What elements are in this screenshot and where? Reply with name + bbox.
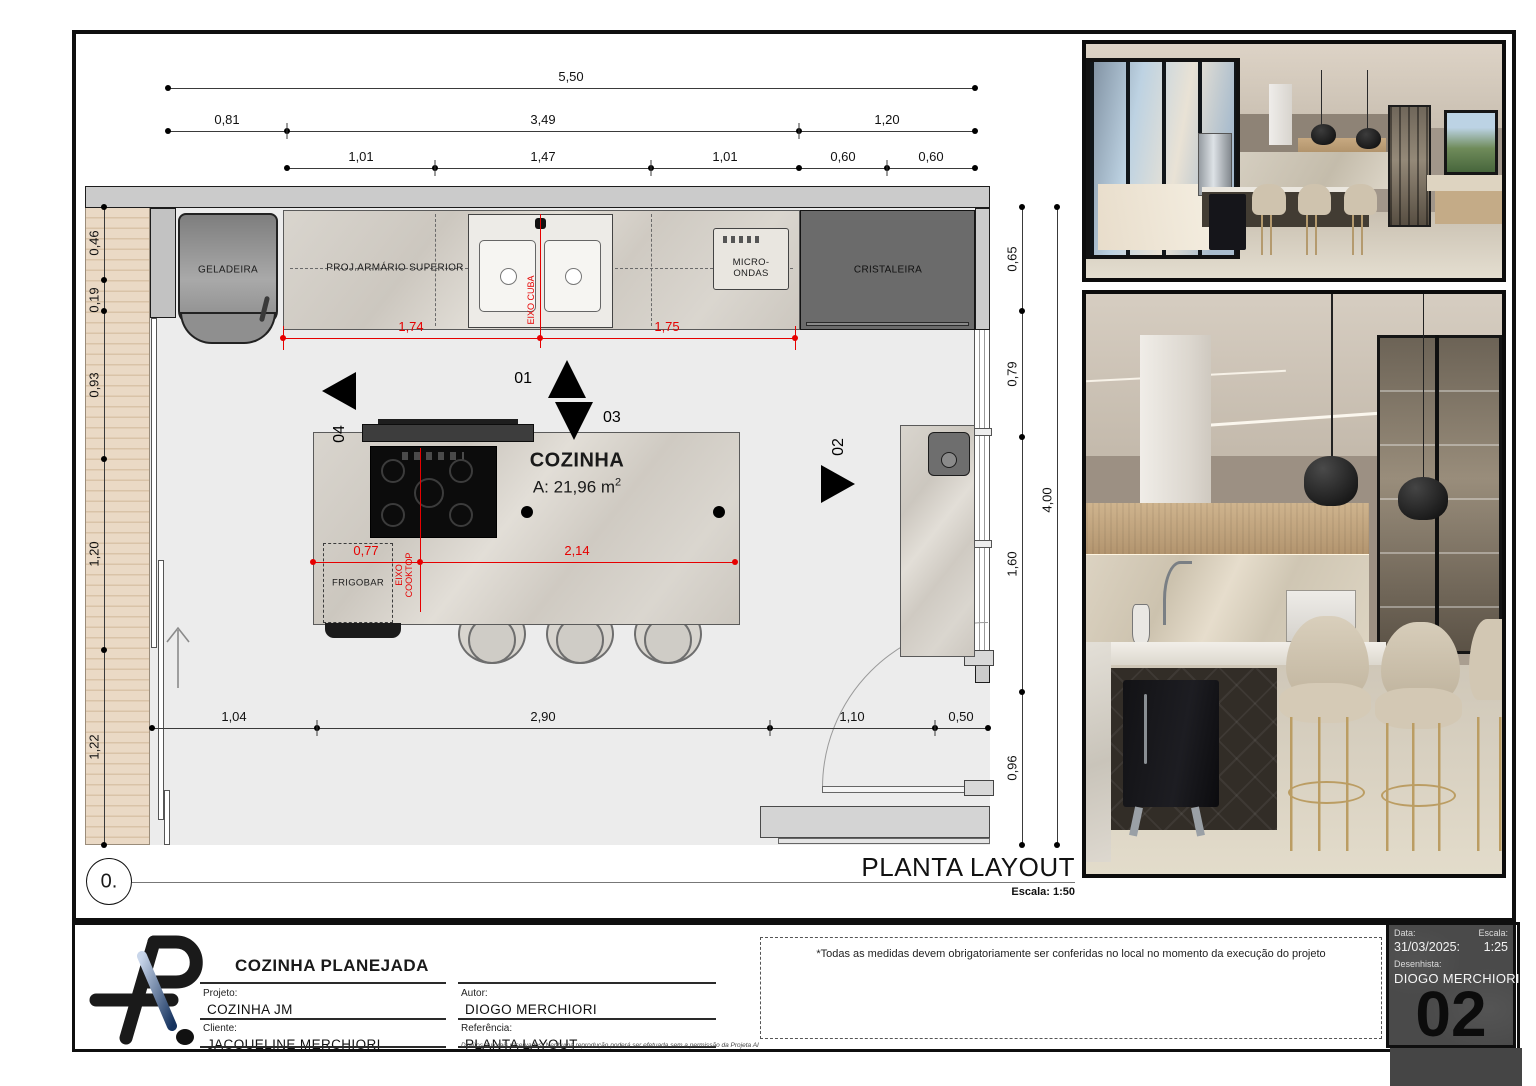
view-arrow-left-icon bbox=[322, 372, 356, 410]
dim-bottom-3: 0,50 bbox=[948, 709, 973, 724]
burner-center bbox=[414, 478, 444, 508]
left-wall-post bbox=[150, 208, 176, 318]
axis-cooktop-label: EIXO COOKTOP bbox=[394, 547, 414, 603]
view-label-02: 02 bbox=[830, 438, 848, 456]
desenhista-label: Desenhista: bbox=[1394, 959, 1442, 969]
photo1-window bbox=[1444, 110, 1498, 176]
window-transom-1 bbox=[972, 428, 992, 436]
photo2-pendant-2 bbox=[1398, 477, 1448, 521]
right-wall-upper bbox=[975, 208, 990, 330]
cristaleira-front-line bbox=[806, 322, 969, 326]
dim-top-total: 5,50 bbox=[558, 69, 583, 84]
dim-bottom-0: 1,04 bbox=[221, 709, 246, 724]
dim-top-inner-3: 0,60 bbox=[830, 149, 855, 164]
studio-logo bbox=[84, 934, 294, 1046]
dim-left-2: 0,93 bbox=[87, 372, 102, 397]
red-dim-line bbox=[313, 562, 735, 563]
bottom-counter-edge bbox=[778, 838, 990, 844]
burner-1 bbox=[381, 459, 405, 483]
axis-cooktop-line bbox=[420, 448, 421, 612]
dim-line bbox=[287, 168, 975, 169]
dim-right-3: 0,96 bbox=[1005, 755, 1020, 780]
dim-right-1: 0,79 bbox=[1005, 361, 1020, 386]
dim-left-3: 1,20 bbox=[87, 541, 102, 566]
view-label-03: 03 bbox=[603, 409, 621, 427]
info-block-footer bbox=[1390, 1048, 1522, 1086]
data-label: Data: bbox=[1394, 928, 1416, 938]
entry-arrow-icon bbox=[162, 620, 194, 690]
plan-scale: Escala: 1:50 bbox=[1011, 886, 1075, 898]
dim-right-0: 0,65 bbox=[1005, 246, 1020, 271]
room-area: A: 21,96 m2 bbox=[533, 477, 621, 498]
projeto-label: Projeto: bbox=[203, 988, 237, 999]
dim-red-island-1: 2,14 bbox=[564, 543, 589, 558]
dim-line bbox=[152, 728, 988, 729]
top-wall bbox=[85, 186, 990, 208]
photo2-hood-column bbox=[1140, 335, 1211, 515]
view-label-01: 01 bbox=[514, 370, 532, 388]
island-knob-1 bbox=[521, 506, 533, 518]
dim-left-1: 0,19 bbox=[87, 287, 102, 312]
dim-red-top-0: 1,74 bbox=[398, 319, 423, 334]
burner-4 bbox=[449, 503, 473, 527]
cliente-value: JACQUELINE MERCHIORI bbox=[207, 1037, 381, 1052]
axis-cuba-line bbox=[540, 214, 541, 348]
autor-value: DIOGO MERCHIORI bbox=[465, 1002, 597, 1017]
cliente-label: Cliente: bbox=[203, 1023, 237, 1034]
photo2-island-waterfall bbox=[1086, 642, 1111, 862]
cooktop-knobs bbox=[402, 452, 464, 460]
photo1-frigobar bbox=[1209, 194, 1246, 250]
dim-top-inner-2: 1,01 bbox=[712, 149, 737, 164]
burner-2 bbox=[449, 459, 473, 483]
burner-3 bbox=[381, 503, 405, 527]
projeto-value: COZINHA JM bbox=[207, 1002, 293, 1017]
view-arrow-up-icon bbox=[548, 360, 586, 398]
copyright-note: Direitos autorais reservados. Nenhuma re… bbox=[461, 1042, 761, 1049]
fridge-label: GELADEIRA bbox=[198, 265, 258, 276]
render-photo-top bbox=[1082, 40, 1506, 282]
photo1-stool-1 bbox=[1252, 184, 1285, 214]
window-transom-2 bbox=[972, 540, 992, 548]
room-name: COZINHA bbox=[530, 450, 625, 473]
plan-title: PLANTA LAYOUT bbox=[861, 852, 1075, 883]
photo1-pendant-cord-2 bbox=[1367, 70, 1368, 133]
photo2-moka-pot bbox=[1132, 604, 1151, 645]
photo2-frigobar bbox=[1123, 680, 1219, 808]
dim-line bbox=[1022, 207, 1023, 845]
photo1-pendant-1 bbox=[1311, 124, 1336, 145]
data-value: 31/03/2025: bbox=[1394, 940, 1460, 954]
dim-top-inner-4: 0,60 bbox=[918, 149, 943, 164]
referencia-label: Referência: bbox=[461, 1023, 512, 1034]
photo2-pendant-cord-1 bbox=[1331, 294, 1333, 462]
dim-left-0: 0,46 bbox=[87, 230, 102, 255]
right-window bbox=[974, 330, 990, 655]
photo2-pendant-cord-2 bbox=[1423, 294, 1425, 480]
dim-bottom-1: 2,90 bbox=[530, 709, 555, 724]
autor-label: Autor: bbox=[461, 988, 488, 999]
sliding-door-rail-2 bbox=[158, 560, 164, 820]
door-jamb-bottom bbox=[964, 780, 994, 796]
photo1-pendant-cord-1 bbox=[1321, 70, 1322, 129]
dim-top-mid-0: 0,81 bbox=[214, 112, 239, 127]
photo1-stool-legs-1 bbox=[1261, 215, 1278, 255]
dim-line bbox=[104, 207, 105, 845]
photo1-hood bbox=[1269, 84, 1292, 145]
photo2-frigobar-handle bbox=[1144, 694, 1147, 764]
photo1-stool-3 bbox=[1344, 184, 1377, 214]
sink-drain-right bbox=[565, 268, 582, 285]
upper-cabinet-label: PROJ.ARMÁRIO SUPERIOR bbox=[326, 263, 463, 274]
view-marker-number: 0. bbox=[101, 871, 118, 894]
sliding-door-rail-3 bbox=[164, 790, 170, 845]
bottom-counter bbox=[760, 806, 990, 838]
photo2-pendant-1 bbox=[1304, 456, 1358, 505]
photo2-wood-cabinet bbox=[1086, 503, 1369, 555]
sink-drain-left bbox=[500, 268, 517, 285]
island-knob-2 bbox=[713, 506, 725, 518]
axis-cuba-label: EIXO CUBA bbox=[526, 275, 536, 324]
render-photo-bottom bbox=[1082, 290, 1506, 878]
view-arrow-down-icon bbox=[555, 402, 593, 440]
dim-top-inner-0: 1,01 bbox=[348, 149, 373, 164]
dim-line bbox=[168, 88, 975, 89]
dim-top-inner-1: 1,47 bbox=[530, 149, 555, 164]
measures-note-text: *Todas as medidas devem obrigatoriamente… bbox=[816, 948, 1325, 960]
island-oven-front bbox=[325, 623, 401, 638]
dim-right-total: 4,00 bbox=[1040, 487, 1055, 512]
island-hood bbox=[362, 424, 534, 442]
photo2-stool3-legs bbox=[1477, 717, 1502, 850]
drawing-sheet: GELADEIRA PROJ.ARMÁRIO SUPERIOR MICRO-ON… bbox=[0, 0, 1536, 1086]
dim-red-island-0: 0,77 bbox=[353, 543, 378, 558]
photo1-stool-legs-2 bbox=[1306, 215, 1323, 255]
dim-left-4: 1,22 bbox=[87, 734, 102, 759]
island-hood-top bbox=[378, 419, 518, 424]
dim-line bbox=[1057, 207, 1058, 845]
cabinet-dashed-v2 bbox=[651, 214, 652, 326]
microwave-vents bbox=[723, 236, 761, 243]
microwave-label: MICRO-ONDAS bbox=[718, 257, 784, 279]
photo1-cristaleira bbox=[1388, 105, 1432, 227]
dim-red-top-1: 1,75 bbox=[654, 319, 679, 334]
coffee-machine-cup bbox=[941, 452, 957, 468]
dim-bottom-2: 1,10 bbox=[839, 709, 864, 724]
escala-label: Escala: bbox=[1478, 928, 1508, 938]
sheet-number: 02 bbox=[1415, 982, 1486, 1046]
dim-top-mid-1: 3,49 bbox=[530, 112, 555, 127]
escala-value: 1:25 bbox=[1484, 940, 1508, 954]
frigobar-label: FRIGOBAR bbox=[332, 578, 384, 589]
sliding-door-rail-1 bbox=[151, 318, 157, 648]
cristaleira-label: CRISTALEIRA bbox=[854, 265, 922, 276]
dim-right-2: 1,60 bbox=[1005, 551, 1020, 576]
photo1-stool-2 bbox=[1298, 184, 1331, 214]
photo1-right-cabinet bbox=[1435, 191, 1502, 224]
photo1-right-counter bbox=[1427, 175, 1502, 191]
dim-top-mid-2: 1,20 bbox=[874, 112, 899, 127]
photo1-pendant-2 bbox=[1356, 128, 1381, 149]
view-label-04: 04 bbox=[331, 425, 349, 443]
company-title: COZINHA PLANEJADA bbox=[235, 956, 429, 976]
photo1-stool-legs-3 bbox=[1352, 215, 1369, 255]
view-arrow-right-icon bbox=[821, 465, 855, 503]
